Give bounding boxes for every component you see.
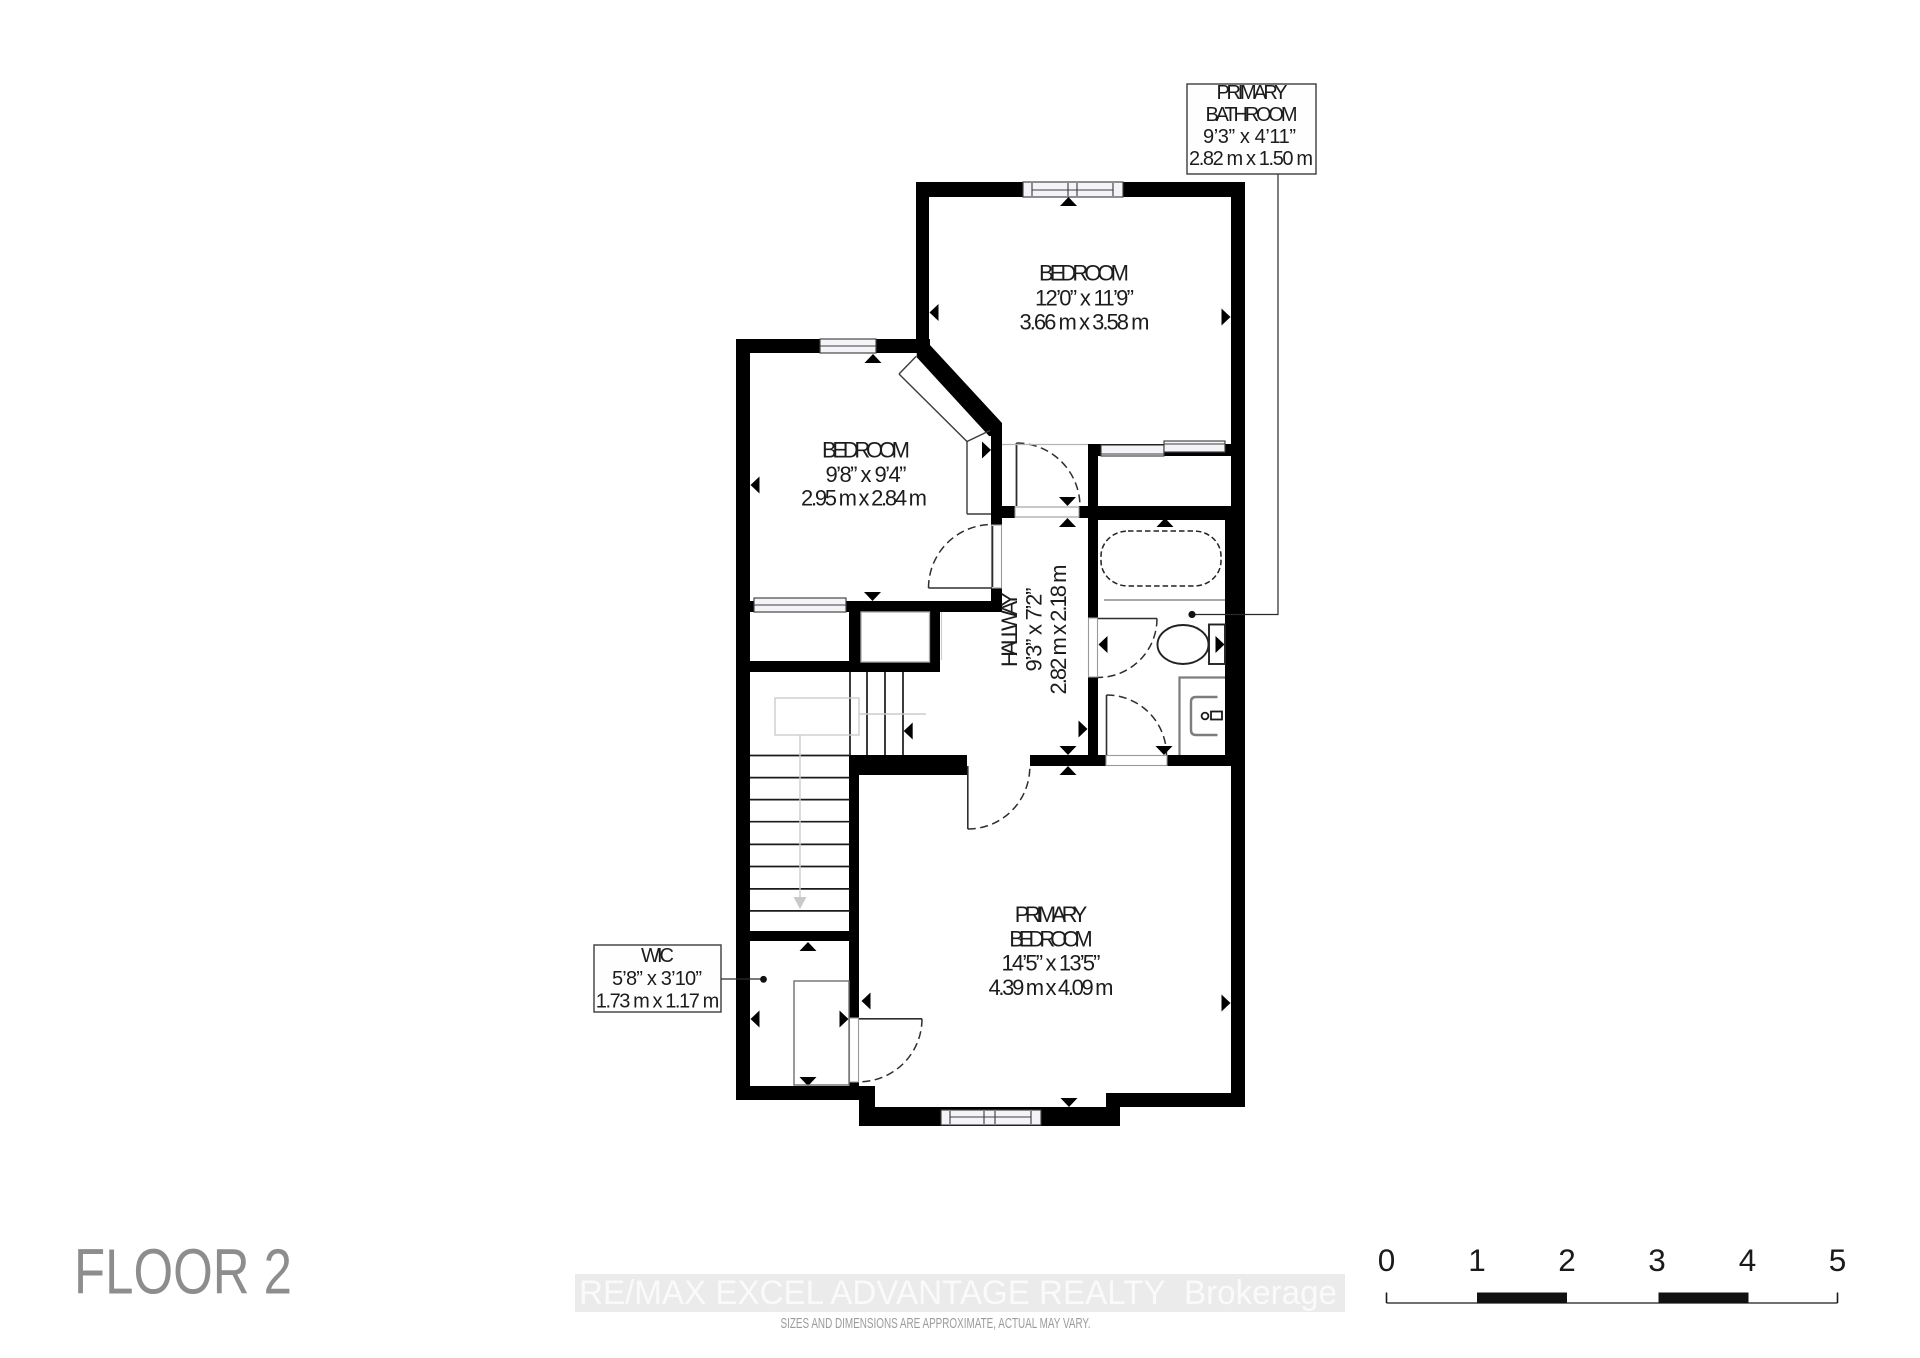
svg-text:BEDROOM: BEDROOM [822, 438, 910, 463]
svg-text:PRIMARY: PRIMARY [1015, 902, 1088, 927]
svg-text:4: 4 [1739, 1242, 1757, 1278]
svg-text:2.95 m x 2.84 m: 2.95 m x 2.84 m [801, 486, 927, 511]
svg-text:12’0” x 11’9”: 12’0” x 11’9” [1035, 286, 1134, 311]
svg-text:BEDROOM: BEDROOM [1039, 261, 1129, 286]
svg-text:5’8” x 3’10”: 5’8” x 3’10” [612, 968, 702, 990]
svg-text:PRIMARY: PRIMARY [1217, 82, 1288, 104]
svg-text:SIZES AND DIMENSIONS ARE APPRO: SIZES AND DIMENSIONS ARE APPROXIMATE, AC… [781, 1315, 1091, 1332]
svg-text:BATHROOM: BATHROOM [1206, 104, 1298, 126]
svg-text:4.39 m x 4.09 m: 4.39 m x 4.09 m [989, 975, 1114, 1000]
svg-text:5: 5 [1829, 1242, 1847, 1278]
svg-text:RE/MAX EXCEL ADVANTAGE REALTY: RE/MAX EXCEL ADVANTAGE REALTY Brokerage [579, 1274, 1337, 1312]
svg-text:9’3” x 7’2”: 9’3” x 7’2” [1022, 588, 1047, 672]
svg-text:1: 1 [1468, 1242, 1486, 1278]
svg-text:9’3” x 4’11”: 9’3” x 4’11” [1203, 126, 1296, 148]
svg-text:FLOOR 2: FLOOR 2 [74, 1236, 292, 1308]
svg-text:BEDROOM: BEDROOM [1009, 927, 1093, 952]
svg-text:14’5” x 13’5”: 14’5” x 13’5” [1002, 951, 1101, 976]
svg-text:1.73 m x 1.17 m: 1.73 m x 1.17 m [596, 991, 720, 1013]
svg-text:WIC: WIC [641, 945, 674, 967]
svg-text:2.82 m x 2.18 m: 2.82 m x 2.18 m [1046, 565, 1071, 695]
svg-text:2: 2 [1558, 1242, 1576, 1278]
svg-text:9’8” x 9’4”: 9’8” x 9’4” [826, 462, 907, 487]
svg-text:0: 0 [1378, 1242, 1396, 1278]
svg-text:2.82 m x 1.50 m: 2.82 m x 1.50 m [1189, 148, 1313, 170]
svg-text:HALLWAY: HALLWAY [997, 592, 1022, 667]
svg-text:3.66 m x 3.58 m: 3.66 m x 3.58 m [1020, 310, 1150, 335]
svg-text:3: 3 [1648, 1242, 1666, 1278]
